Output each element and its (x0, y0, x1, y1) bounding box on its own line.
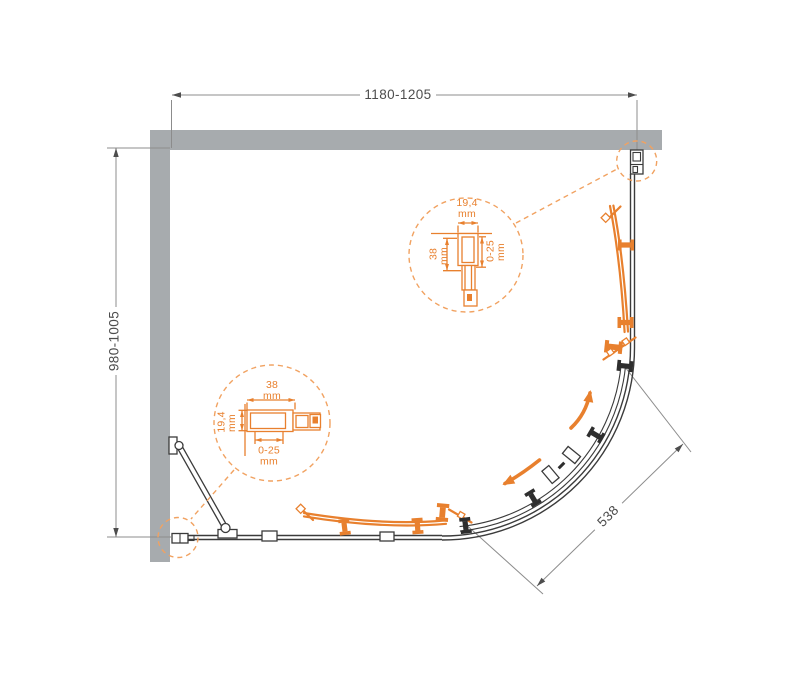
track-bracket (262, 531, 277, 541)
profile-body (631, 150, 644, 174)
door-glass-edge (613, 206, 628, 332)
dimension-depth-label: 980-1005 (107, 311, 122, 371)
edge-profile-rect (542, 465, 559, 483)
extension-line (462, 521, 543, 594)
profile-insert (467, 294, 472, 301)
detail-bl-width-unit: mm (226, 414, 238, 432)
rotated-label: 538 (588, 496, 627, 535)
arrow-icon (113, 528, 118, 537)
roller-icon (618, 317, 634, 328)
roller-carrier-icon (436, 503, 450, 522)
arrow-icon (472, 221, 479, 225)
rotated-label: mm (438, 247, 450, 265)
door-pivot (221, 524, 230, 533)
detail-tr-width-unit: mm (458, 208, 476, 220)
track-bracket (380, 532, 394, 541)
arrow-icon (480, 261, 484, 268)
curved-track-inner (442, 348, 631, 537)
swing-door (169, 437, 237, 538)
left-wall (150, 130, 170, 562)
door-edge-profile (562, 446, 580, 463)
rotated-label: mm (226, 414, 238, 432)
sliding-door-bottom (296, 503, 471, 536)
arrow-icon (289, 398, 296, 402)
magnet-strip (558, 462, 566, 470)
door-hinge (175, 442, 183, 450)
rotated-label: 980-1005 (105, 307, 122, 375)
magnet-strip-rect (558, 462, 566, 470)
edge-profile-rect (562, 446, 580, 463)
roller-icon (618, 240, 634, 251)
arrow-icon (445, 239, 449, 246)
technical-drawing-canvas: 1180-1205 980-1005 538 (0, 0, 800, 680)
door-panel (178, 447, 227, 528)
profile-outer (458, 234, 478, 266)
detail-bl-depth-unit: mm (263, 390, 281, 402)
arrow-icon (277, 438, 284, 442)
door-edge-profile (542, 465, 559, 483)
detail-top-right-profile: 19,4 mm 38 mm 0-25 mm (428, 197, 508, 306)
handle-block (622, 338, 630, 346)
arrow-icon (240, 411, 244, 418)
arrow-icon (480, 237, 484, 244)
detail-tr-adjust-unit: mm (495, 243, 507, 261)
slide-arrow-down-icon (505, 460, 540, 484)
arrow-icon (458, 221, 465, 225)
detail-tr-depth-unit: mm (438, 247, 450, 265)
rotated-label: mm (495, 243, 507, 261)
callout-leader-line (516, 169, 617, 223)
door-end-block (601, 213, 610, 222)
arrow-icon (172, 92, 181, 97)
arrow-icon (255, 438, 262, 442)
arrow-icon (113, 148, 118, 157)
dimension-width-label: 1180-1205 (364, 87, 431, 102)
wall-profile-top-right (631, 150, 644, 174)
detail-bl-adjust-unit: mm (260, 456, 278, 468)
detail-bottom-left-profile: 38 mm 19,4 mm 0-25 mm (216, 379, 321, 468)
profile-insert (313, 417, 319, 424)
arrow-icon (240, 424, 244, 431)
arrow-icon (247, 398, 254, 402)
door-panel-bar (178, 447, 227, 528)
arrow-icon (628, 92, 637, 97)
callouts (158, 141, 657, 558)
door-glass-edge (304, 513, 444, 522)
enclosure-frame (172, 150, 643, 543)
top-wall (150, 130, 662, 150)
slide-arrow-up-icon (571, 393, 590, 428)
walls (150, 130, 662, 562)
extension-line (625, 367, 691, 452)
shower-enclosure-plan-svg: 1180-1205 980-1005 538 (0, 0, 800, 680)
profile-waist (462, 266, 475, 291)
roller-icon (338, 518, 351, 535)
